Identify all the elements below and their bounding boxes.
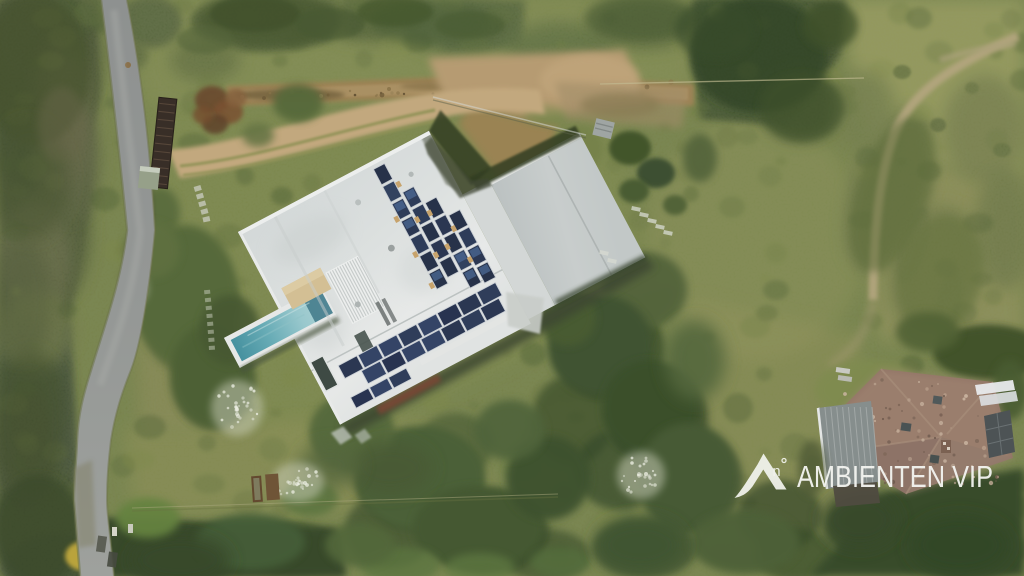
svg-text:AMBIENTEN VIP: AMBIENTEN VIP bbox=[797, 459, 993, 494]
svg-text:n: n bbox=[773, 464, 781, 480]
